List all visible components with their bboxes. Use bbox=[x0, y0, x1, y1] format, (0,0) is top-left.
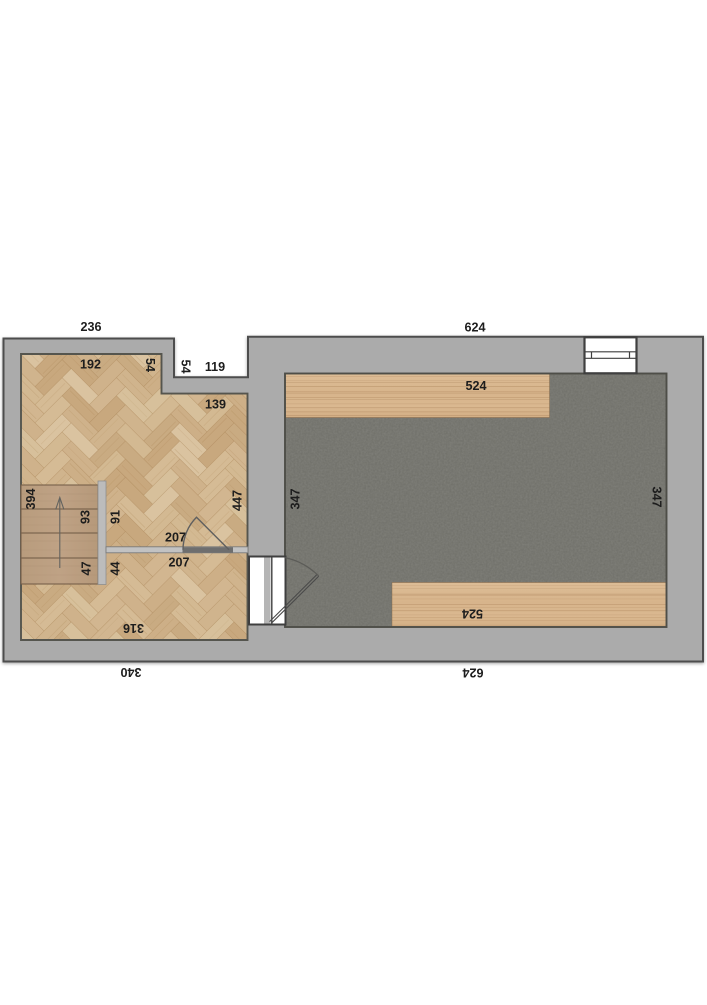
svg-text:139: 139 bbox=[205, 398, 226, 412]
svg-text:207: 207 bbox=[165, 531, 186, 545]
svg-text:624: 624 bbox=[464, 321, 485, 335]
svg-text:93: 93 bbox=[79, 510, 93, 524]
svg-text:347: 347 bbox=[289, 488, 303, 509]
svg-text:47: 47 bbox=[80, 561, 94, 575]
svg-text:207: 207 bbox=[168, 556, 189, 570]
svg-text:524: 524 bbox=[462, 607, 483, 621]
svg-text:119: 119 bbox=[205, 360, 225, 374]
svg-text:347: 347 bbox=[650, 486, 664, 507]
svg-text:447: 447 bbox=[231, 490, 245, 511]
svg-text:624: 624 bbox=[462, 666, 483, 680]
svg-text:54: 54 bbox=[143, 358, 157, 372]
svg-text:524: 524 bbox=[465, 379, 486, 393]
svg-text:91: 91 bbox=[109, 510, 123, 524]
svg-text:316: 316 bbox=[123, 621, 144, 635]
svg-text:44: 44 bbox=[109, 561, 123, 575]
svg-text:394: 394 bbox=[24, 488, 38, 509]
svg-text:192: 192 bbox=[80, 358, 101, 372]
svg-text:236: 236 bbox=[80, 320, 101, 334]
svg-text:340: 340 bbox=[120, 665, 141, 679]
svg-text:54: 54 bbox=[179, 359, 193, 373]
